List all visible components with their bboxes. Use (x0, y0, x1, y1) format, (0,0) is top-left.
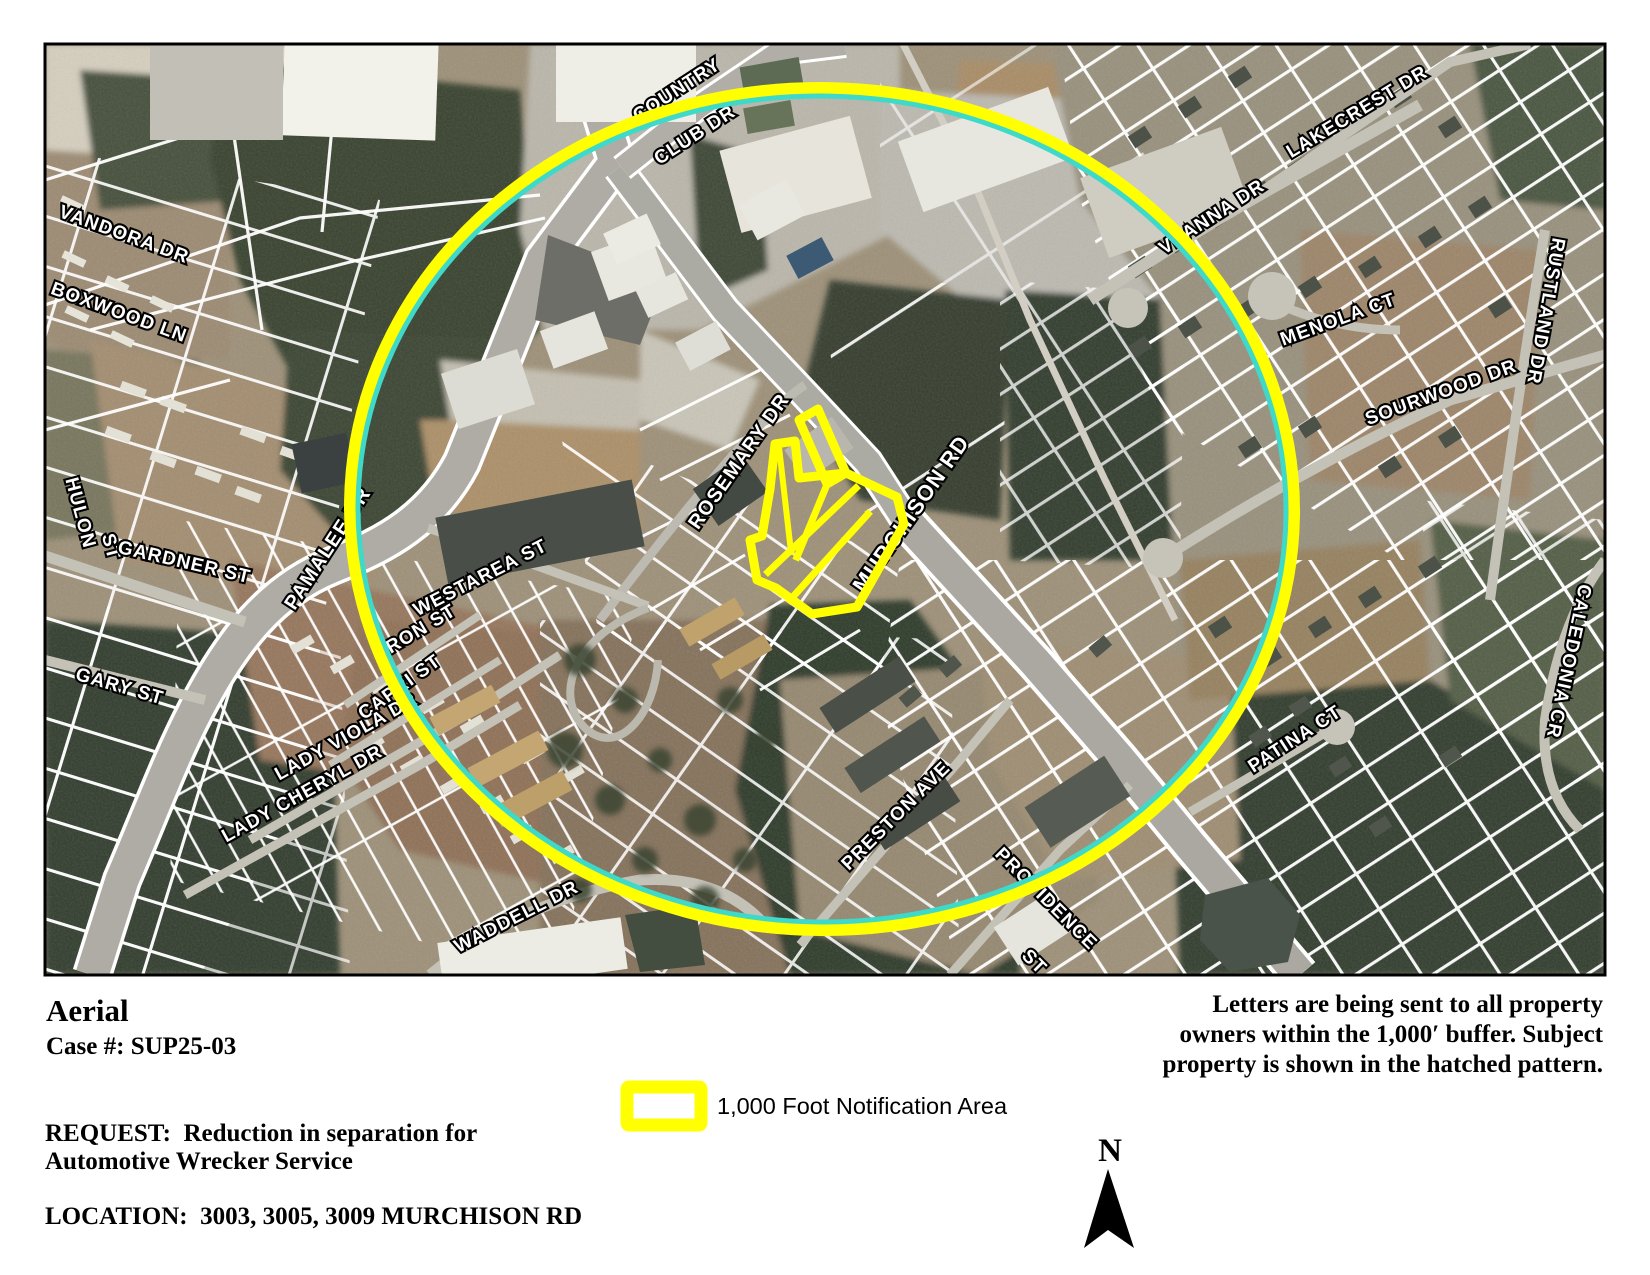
svg-text:REQUEST: Reduction in separat: REQUEST: Reduction in separation for (45, 1120, 477, 1147)
svg-text:owners within the 1,000′ buffe: owners within the 1,000′ buffer. Subject (1180, 1021, 1604, 1048)
svg-text:N: N (1098, 1133, 1122, 1169)
svg-text:Aerial: Aerial (46, 993, 129, 1028)
svg-text:Automotive Wrecker Service: Automotive Wrecker Service (45, 1148, 353, 1175)
svg-text:property is shown in the hatch: property is shown in the hatched pattern… (1162, 1051, 1603, 1078)
svg-text:LOCATION: 3003, 3005, 3009 MU: LOCATION: 3003, 3005, 3009 MURCHISON RD (45, 1203, 582, 1230)
svg-text:1,000 Foot Notification Area: 1,000 Foot Notification Area (717, 1093, 1008, 1119)
svg-text:Letters are being sent to all: Letters are being sent to all property (1212, 991, 1603, 1018)
svg-text:Case #: SUP25-03: Case #: SUP25-03 (46, 1033, 236, 1060)
